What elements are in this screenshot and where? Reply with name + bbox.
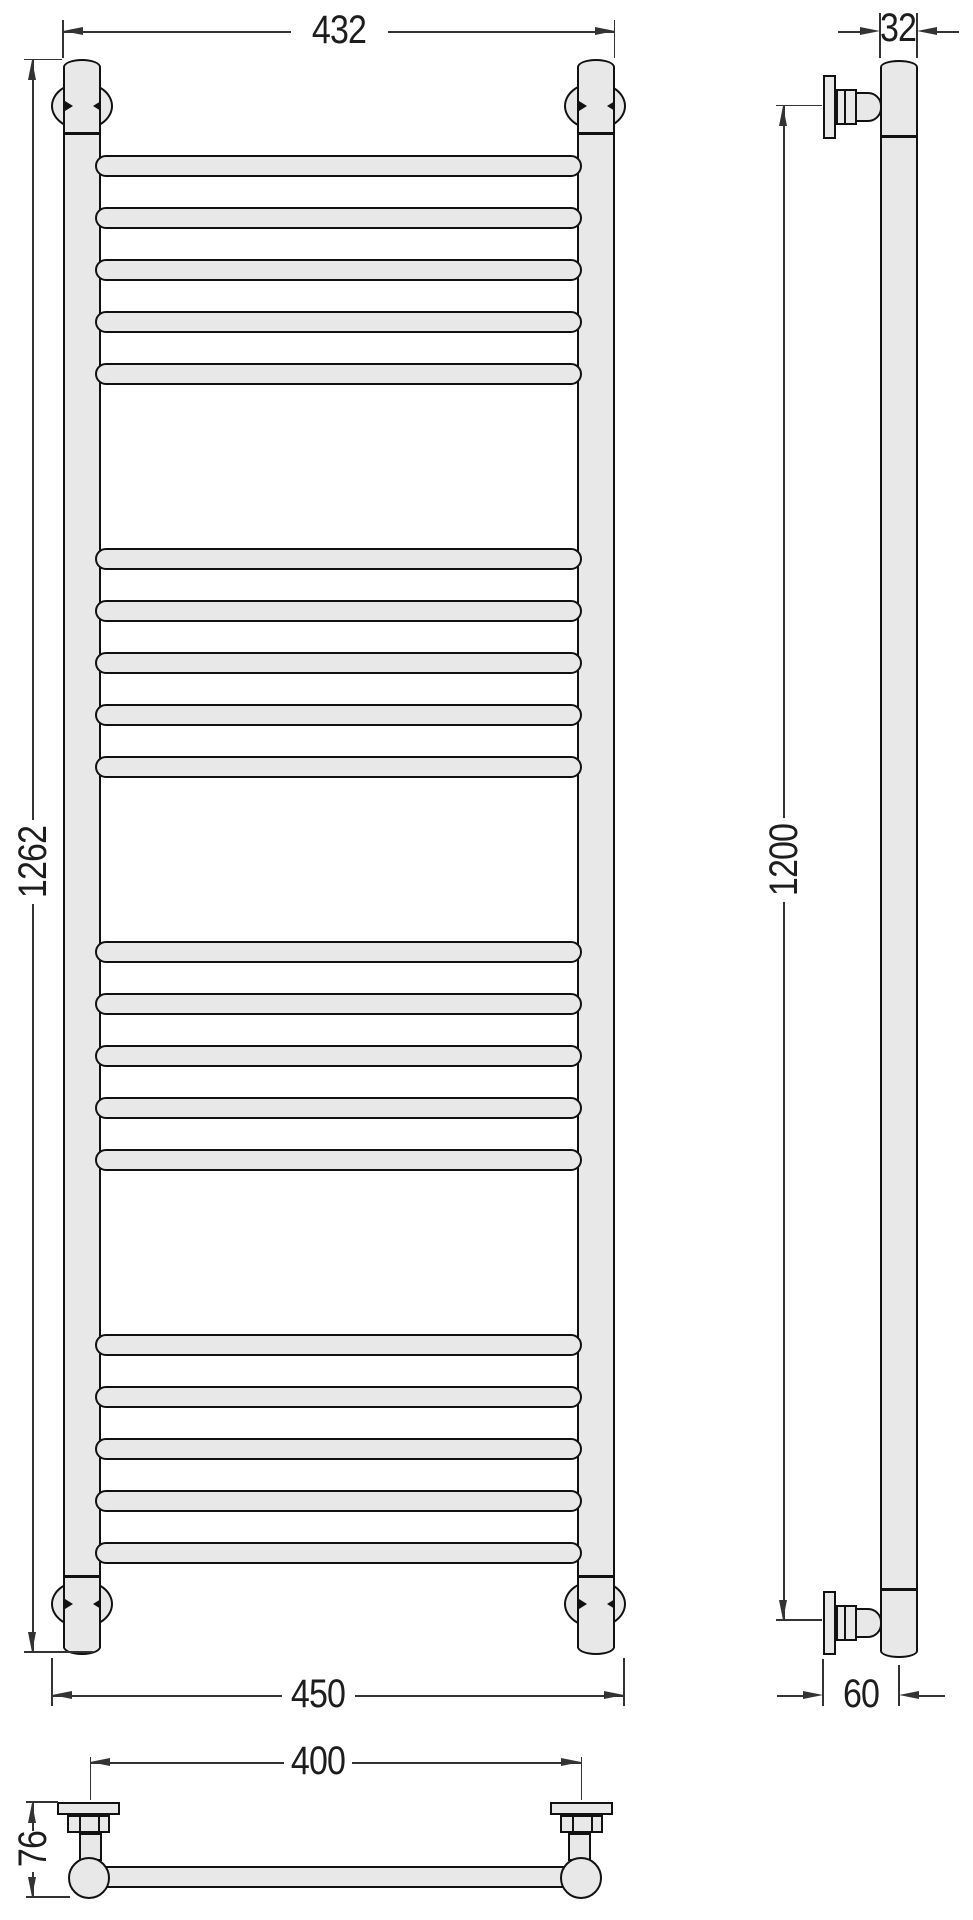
- dimension-line: [32, 904, 34, 1652]
- bracket-stem: [854, 1608, 882, 1638]
- rung: [95, 259, 582, 281]
- rung: [95, 941, 582, 963]
- nut-facet-line: [844, 89, 846, 125]
- arrowhead-down-icon: [28, 1877, 36, 1897]
- arrowhead-up-icon: [779, 106, 787, 126]
- rung: [95, 756, 582, 778]
- rung: [95, 311, 582, 333]
- arrowhead-left-icon: [63, 27, 83, 35]
- bracket-mark-icon: [607, 1599, 615, 1609]
- dimension-line: [777, 1695, 803, 1697]
- bracket-mark-icon: [93, 1599, 101, 1609]
- bracket-mark-icon: [579, 101, 587, 111]
- arrowhead-left-icon: [917, 27, 937, 35]
- dimension-line: [352, 1762, 581, 1764]
- rung: [95, 1097, 582, 1119]
- rung: [95, 1438, 582, 1460]
- dimension-line: [355, 1695, 624, 1697]
- arrowhead-up-icon: [28, 1803, 36, 1823]
- arrowhead-right-icon: [604, 1691, 624, 1699]
- rung: [95, 1386, 582, 1408]
- top-rung-bar: [89, 1866, 581, 1888]
- tube-collar: [63, 1575, 101, 1578]
- tube-collar: [880, 135, 918, 138]
- dim-label-width-bottom: 450: [291, 1674, 345, 1714]
- technical-drawing-canvas: 432 1262 450: [0, 0, 973, 1920]
- rung: [95, 993, 582, 1015]
- tube-collar: [577, 1575, 615, 1578]
- arrowhead-down-icon: [28, 1632, 36, 1652]
- arrowhead-left-icon: [90, 1758, 110, 1766]
- rung: [95, 1490, 582, 1512]
- nut-facet-line: [844, 1605, 846, 1641]
- dimension-line: [783, 106, 785, 818]
- tube-collar: [880, 1588, 918, 1591]
- rung: [95, 155, 582, 177]
- rung: [95, 1334, 582, 1356]
- dimension-line: [838, 31, 860, 33]
- tube-section-circle: [560, 1857, 602, 1899]
- wall-flange: [57, 1802, 120, 1815]
- bracket-mark-icon: [579, 1599, 587, 1609]
- dim-label-depth: 76: [13, 1831, 53, 1867]
- dimension-line: [52, 1695, 282, 1697]
- nut-facet-line: [591, 1815, 593, 1833]
- dimension-line: [90, 1762, 284, 1764]
- arrowhead-down-icon: [779, 1600, 787, 1620]
- dimension-line: [32, 60, 34, 820]
- arrowhead-right-icon: [595, 27, 615, 35]
- bracket-nut: [560, 1815, 603, 1833]
- tube-collar: [577, 132, 615, 135]
- dim-label-tube-diameter: 32: [880, 8, 916, 48]
- bracket-nut: [67, 1815, 110, 1833]
- extension-line: [898, 1665, 900, 1706]
- arrowhead-right-icon: [561, 1758, 581, 1766]
- rung: [95, 704, 582, 726]
- rung: [95, 1149, 582, 1171]
- dimension-line: [937, 31, 959, 33]
- right-tube: [577, 67, 615, 1648]
- wall-flange: [823, 75, 836, 139]
- arrowhead-right-icon: [803, 1691, 823, 1699]
- extension-line: [62, 20, 64, 58]
- left-tube: [63, 67, 101, 1648]
- extension-line: [614, 20, 616, 58]
- dimension-line: [388, 31, 615, 33]
- bracket-mark-icon: [93, 101, 101, 111]
- dimension-line: [63, 31, 291, 33]
- nut-facet-line: [98, 1815, 100, 1833]
- dim-label-wall-offset: 60: [843, 1674, 879, 1714]
- side-tube: [880, 67, 918, 1651]
- dim-label-width-top: 432: [312, 10, 366, 50]
- bracket-mark-icon: [65, 101, 73, 111]
- dimension-line: [919, 1695, 945, 1697]
- rung: [95, 363, 582, 385]
- bracket-mark-icon: [65, 1599, 73, 1609]
- dim-label-bracket-spacing: 400: [291, 1741, 345, 1781]
- arrowhead-left-icon: [52, 1691, 72, 1699]
- rung: [95, 548, 582, 570]
- dim-label-overall-height: 1262: [13, 826, 53, 898]
- dim-label-bracket-height: 1200: [764, 824, 804, 896]
- bracket-mark-icon: [607, 101, 615, 111]
- rung: [95, 1542, 582, 1564]
- rung: [95, 652, 582, 674]
- nut-facet-line: [79, 1815, 81, 1833]
- rung: [95, 1045, 582, 1067]
- extension-line: [916, 13, 918, 58]
- bracket-nut: [836, 1605, 857, 1641]
- bracket-nut: [836, 89, 857, 125]
- rung: [95, 600, 582, 622]
- bracket-stem: [854, 92, 882, 122]
- rung: [95, 207, 582, 229]
- arrowhead-up-icon: [28, 60, 36, 80]
- arrowhead-right-icon: [860, 27, 880, 35]
- dimension-line: [783, 902, 785, 1620]
- nut-facet-line: [572, 1815, 574, 1833]
- wall-flange: [823, 1591, 836, 1655]
- tube-collar: [63, 132, 101, 135]
- wall-flange: [550, 1802, 613, 1815]
- arrowhead-left-icon: [899, 1691, 919, 1699]
- tube-section-circle: [68, 1857, 110, 1899]
